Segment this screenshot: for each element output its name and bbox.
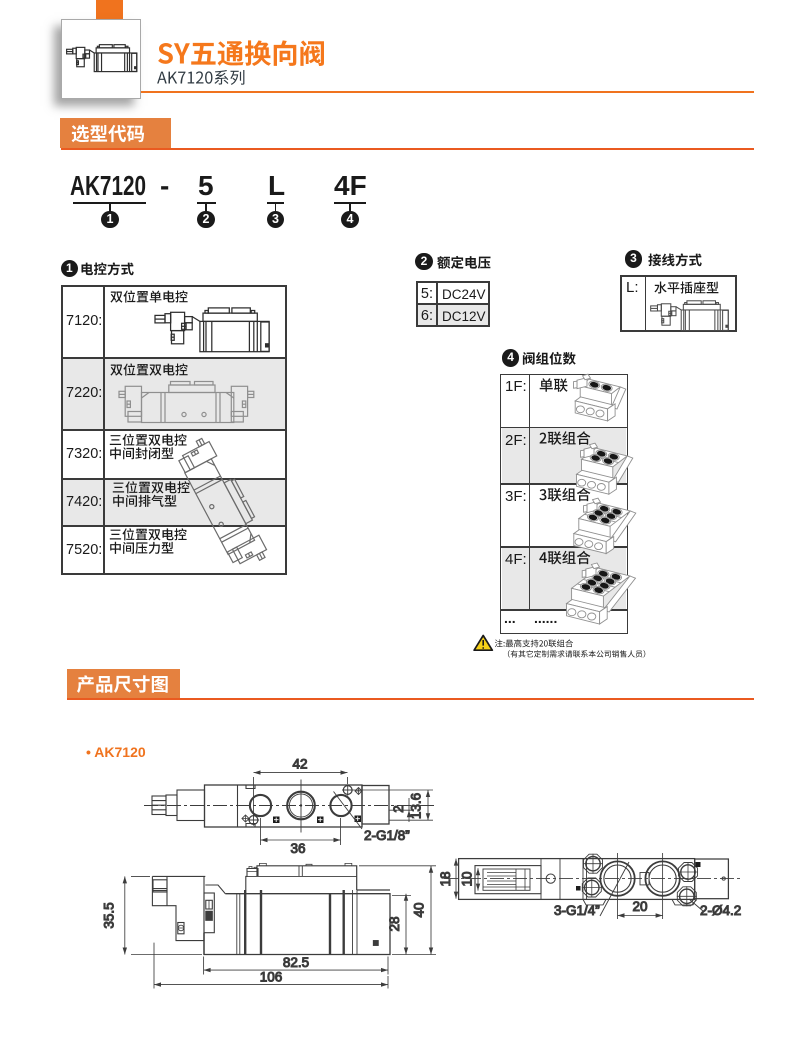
svg-text:28: 28 <box>387 916 402 931</box>
svg-text:2-G1/8”: 2-G1/8” <box>364 828 410 843</box>
svg-text:20: 20 <box>632 899 647 914</box>
svg-text:82.5: 82.5 <box>283 955 309 970</box>
svg-text:35.5: 35.5 <box>102 902 117 928</box>
svg-text:40: 40 <box>412 902 427 917</box>
svg-text:18: 18 <box>438 871 453 886</box>
svg-text:2-Ø4.2: 2-Ø4.2 <box>700 903 741 918</box>
svg-text:10: 10 <box>460 871 475 886</box>
svg-text:36: 36 <box>290 841 305 856</box>
svg-text:3-G1/4”: 3-G1/4” <box>554 903 600 918</box>
svg-text:106: 106 <box>260 969 283 984</box>
svg-text:13.6: 13.6 <box>409 793 424 819</box>
svg-text:2: 2 <box>391 805 406 813</box>
svg-text:42: 42 <box>292 757 307 772</box>
